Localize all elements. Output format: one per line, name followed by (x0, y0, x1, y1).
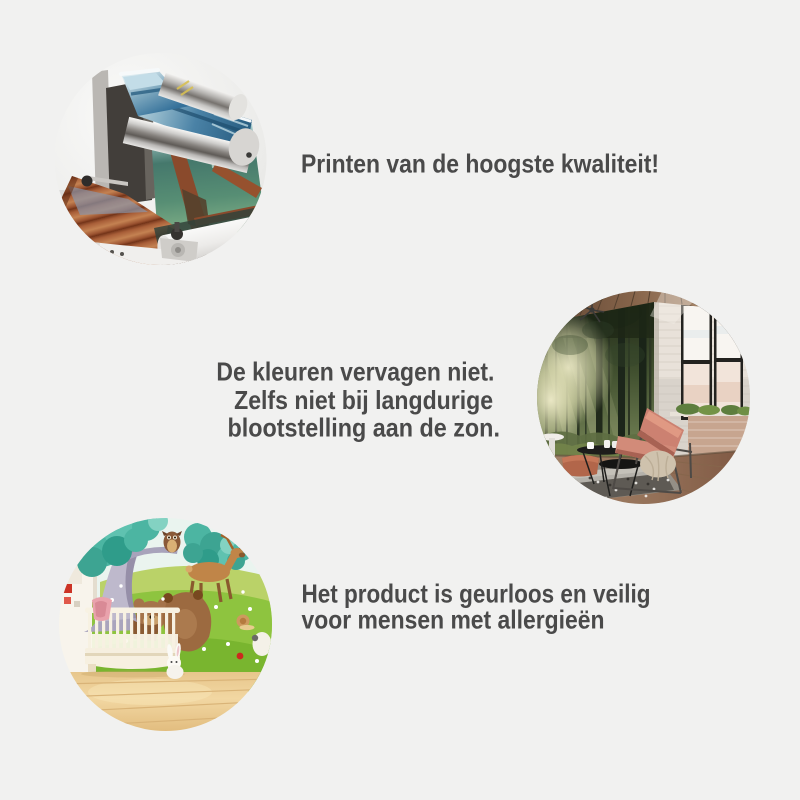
svg-text:Zelfs niet bij langdurige: Zelfs niet bij langdurige (234, 387, 493, 415)
svg-text:blootstelling aan de zon.: blootstelling aan de zon. (227, 415, 500, 443)
svg-text:voor mensen met allergieën: voor mensen met allergieën (302, 607, 605, 635)
svg-text:Het product is geurloos en vei: Het product is geurloos en veilig (302, 580, 651, 608)
svg-text:Printen van de hoogste kwalite: Printen van de hoogste kwaliteit! (301, 151, 659, 179)
svg-text:De kleuren vervagen niet.: De kleuren vervagen niet. (216, 358, 494, 386)
